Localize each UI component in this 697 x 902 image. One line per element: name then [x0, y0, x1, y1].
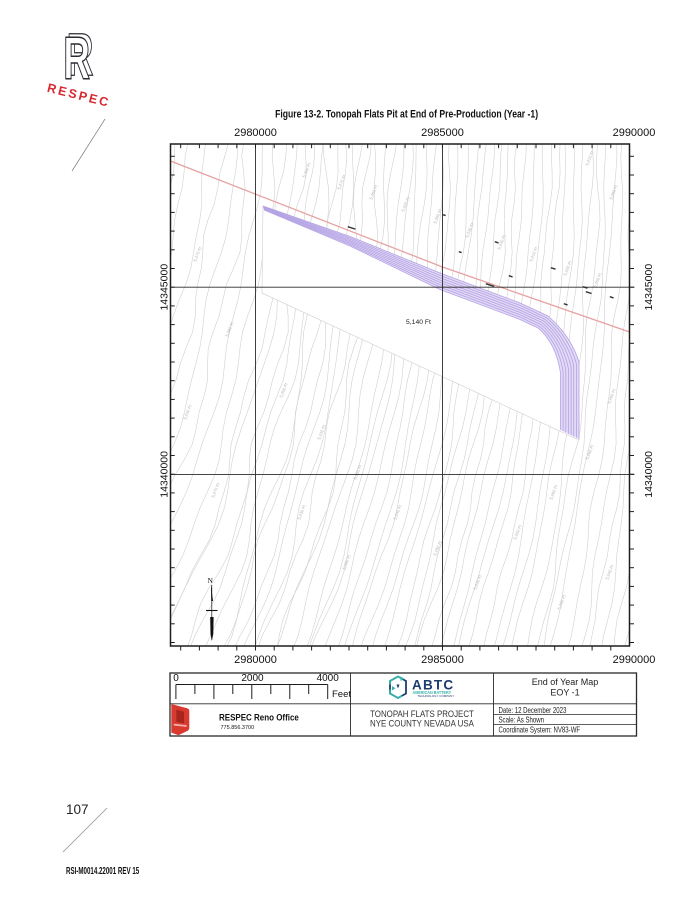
svg-text:Figure 13-2. Tonopah Flats Pit: Figure 13-2. Tonopah Flats Pit at End of…	[275, 109, 538, 121]
svg-text:4000: 4000	[317, 673, 340, 684]
svg-text:2985000: 2985000	[421, 127, 464, 139]
svg-text:0: 0	[173, 673, 179, 684]
svg-text:775.856.3700: 775.856.3700	[221, 725, 255, 731]
svg-text:RSI-M0014.22001 REV 15: RSI-M0014.22001 REV 15	[66, 864, 139, 876]
svg-text:5,140 Ft: 5,140 Ft	[406, 319, 431, 326]
svg-text:Coordinate System: NV83-WF: Coordinate System: NV83-WF	[499, 726, 581, 735]
svg-text:TECHNOLOGY COMPANY: TECHNOLOGY COMPANY	[418, 694, 455, 698]
svg-text:14345000: 14345000	[159, 264, 171, 311]
svg-text:N: N	[208, 576, 214, 585]
svg-text:End of Year Map: End of Year Map	[532, 677, 599, 687]
svg-text:2990000: 2990000	[613, 127, 656, 139]
svg-text:Date: 12 December 2023: Date: 12 December 2023	[499, 706, 567, 715]
svg-text:107: 107	[66, 802, 89, 817]
svg-text:RESPEC Reno Office: RESPEC Reno Office	[219, 712, 299, 723]
svg-text:R: R	[63, 25, 90, 92]
svg-text:NYE COUNTY NEVADA USA: NYE COUNTY NEVADA USA	[370, 718, 474, 729]
svg-text:14340000: 14340000	[159, 451, 171, 498]
svg-text:2980000: 2980000	[234, 127, 277, 139]
svg-text:Feet: Feet	[332, 689, 351, 700]
svg-text:2980000: 2980000	[234, 654, 277, 666]
svg-text:14340000: 14340000	[643, 451, 655, 498]
svg-text:Scale: As Shown: Scale: As Shown	[499, 716, 545, 725]
svg-text:14345000: 14345000	[643, 264, 655, 311]
svg-text:2000: 2000	[241, 673, 264, 684]
svg-text:2990000: 2990000	[613, 654, 656, 666]
svg-text:EOY -1: EOY -1	[550, 688, 579, 698]
svg-text:2985000: 2985000	[421, 654, 464, 666]
